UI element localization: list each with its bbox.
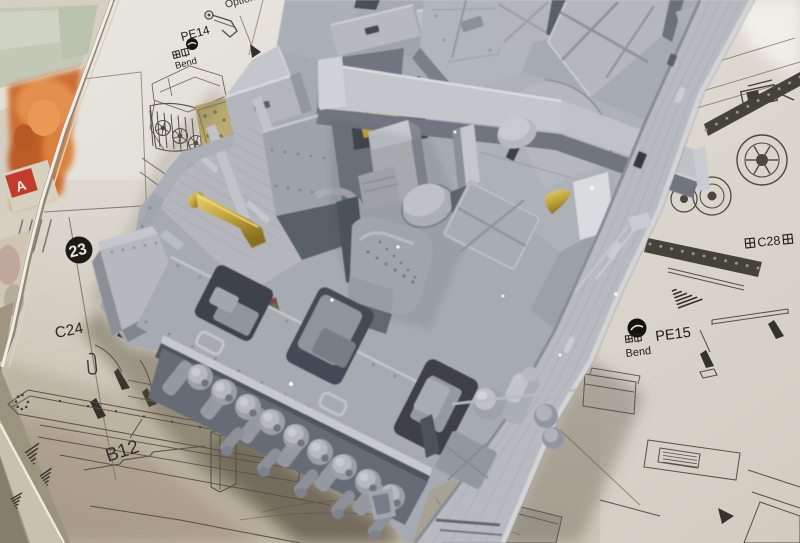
svg-text:C28: C28 [757, 233, 781, 249]
